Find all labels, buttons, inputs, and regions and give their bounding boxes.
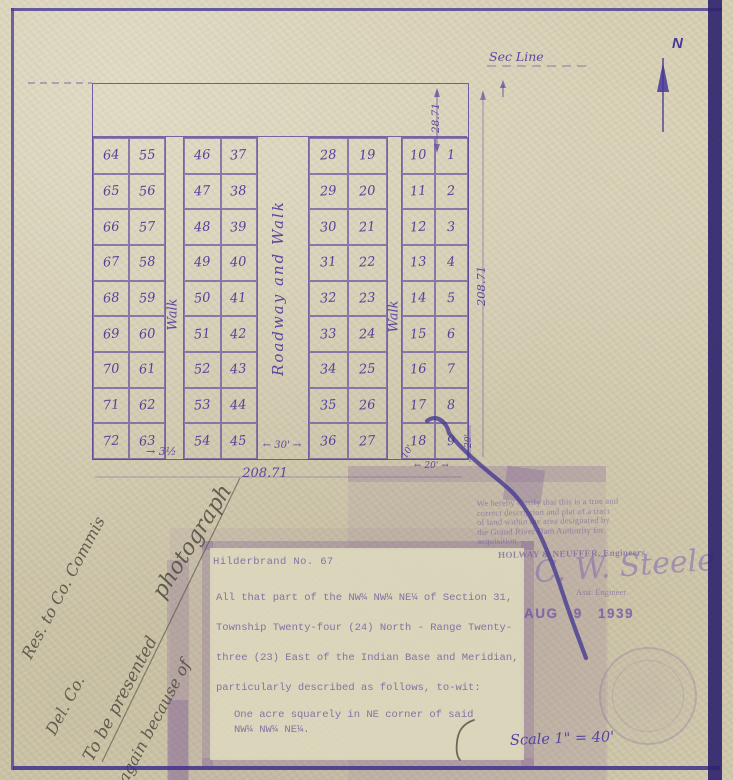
lot-number: 48 [193,219,211,235]
lot-number: 46 [193,148,211,164]
lot-cell: 57 [129,209,165,245]
lot-cell: 55 [129,138,165,174]
lot-number: 65 [102,183,120,199]
sec-line-arrowhead [500,80,506,88]
description-line: three (23) East of the Indian Base and M… [216,652,518,682]
lot-cell: 58 [129,245,165,281]
lot-cell: 29 [309,174,348,210]
lot-cell: 46 [184,138,221,174]
lot-number: 4 [447,255,456,271]
overlay-top-stain [348,466,606,482]
lot-cell: 5 [435,281,468,317]
lot-number: 35 [320,397,338,413]
north-arrow-head [657,62,669,92]
lot-cell: 7 [435,352,468,388]
description-line: All that part of the NW¼ NW¼ NE¼ of Sect… [216,592,518,622]
dim-side-height: 208.71 [474,259,488,313]
frame-left-line [11,8,14,770]
lot-cell: 4 [435,245,468,281]
dim-walk-left: → 3½ [146,445,176,458]
description-body: All that part of the NW¼ NW¼ NE¼ of Sect… [216,592,518,712]
description-heading: Hilderbrand No. 67 [213,556,334,568]
lot-cell: 23 [348,281,387,317]
lot-number: 38 [230,183,248,199]
lot-cell: 65 [93,174,129,210]
lot-number: 72 [102,433,120,449]
lot-number: 2 [447,184,456,200]
lot-cell: 59 [129,281,165,317]
lot-number: 41 [230,290,248,306]
lot-number: 68 [102,290,120,306]
lot-cell: 71 [93,388,129,424]
description-line: One acre squarely in NE corner of said [234,708,473,723]
lot-number: 26 [359,397,377,413]
lot-cell: 34 [309,352,348,388]
lot-number: 15 [410,326,428,342]
lot-cell: 27 [348,423,387,459]
lot-cell: 37 [221,138,258,174]
lot-cell: 1 [435,138,468,174]
lot-cell: 72 [93,423,129,459]
lot-cell: 14 [402,281,435,317]
lot-cell: 43 [221,352,258,388]
lot-cell: 24 [348,316,387,352]
lot-cell: 28 [309,138,348,174]
lot-block-b: 464748495051525354373839404142434445 [183,137,258,460]
lot-number: 59 [138,290,156,306]
lot-number: 7 [447,362,456,378]
lot-cell: 38 [221,174,258,210]
lot-number: 39 [230,219,248,235]
lot-number: 52 [193,362,211,378]
lot-cell: 2 [435,174,468,210]
lot-cell: 48 [184,209,221,245]
lot-cell: 39 [221,209,258,245]
lot-number: 37 [230,148,248,164]
lot-number: 61 [138,362,156,378]
lot-cell: 10 [402,138,435,174]
lot-cell: 35 [309,388,348,424]
lot-number: 6 [447,326,456,342]
lot-number: 12 [410,219,428,235]
lot-number: 24 [359,326,377,342]
lot-cell: 47 [184,174,221,210]
dim-lot-width: ← 20' → [414,461,449,471]
dim-roadway-width: ← 30' → [256,440,308,451]
lot-number: 56 [138,183,156,199]
lot-cell: 50 [184,281,221,317]
lot-number: 1 [447,148,456,164]
lot-number: 42 [230,326,248,342]
lot-number: 36 [320,433,338,449]
lot-number: 16 [410,362,428,378]
lot-number: 14 [410,290,428,306]
lot-cell: 51 [184,316,221,352]
dim-arrow [480,90,486,100]
lot-cell: 17 [402,388,435,424]
lot-cell: 31 [309,245,348,281]
lot-number: 19 [359,148,377,164]
lot-number: 67 [102,255,120,271]
lot-number: 20 [359,183,377,199]
lot-number: 45 [230,433,248,449]
lot-number: 30 [320,219,338,235]
lot-cell: 56 [129,174,165,210]
pencil-note-line: photograph [147,480,237,603]
lot-number: 21 [359,219,377,235]
lot-cell: 13 [402,245,435,281]
lot-cell: 61 [129,352,165,388]
lot-block-a: 646566676869707172555657585960616263 [92,137,166,460]
lot-cell: 52 [184,352,221,388]
lot-cell: 60 [129,316,165,352]
lot-number: 43 [230,362,248,378]
lot-number: 22 [359,255,377,271]
lot-number: 28 [320,148,338,164]
north-label: N [672,35,683,52]
description-line: NW¼ NW¼ NE¼. [234,723,473,738]
lot-number: 10 [410,148,428,164]
lot-number: 50 [193,290,211,306]
sec-line-label: Sec Line [489,49,544,64]
lot-cell: 49 [184,245,221,281]
lot-cell: 21 [348,209,387,245]
lot-cell: 30 [309,209,348,245]
lot-number: 31 [320,255,338,271]
lot-cell: 8 [435,388,468,424]
lot-cell: 6 [435,316,468,352]
lot-number: 55 [138,148,156,164]
lot-number: 11 [410,183,428,199]
lot-cell: 40 [221,245,258,281]
lot-cell: 11 [402,174,435,210]
lot-number: 62 [138,397,156,413]
lot-number: 5 [447,291,456,307]
description-indented: One acre squarely in NE corner of saidNW… [234,708,473,737]
lot-number: 33 [320,326,338,342]
roadway-label: Roadway and Walk [269,190,287,386]
lot-number: 69 [102,326,120,342]
lot-number: 58 [138,255,156,271]
lot-number: 17 [410,397,428,413]
lot-cell: 16 [402,352,435,388]
lot-cell: 41 [221,281,258,317]
lot-block-c: 282930313233343536192021222324252627 [308,137,388,460]
lot-cell: 67 [93,245,129,281]
lot-block-d: 101112131415161718123456789 [401,137,469,460]
description-line: Township Twenty-four (24) North - Range … [216,622,518,652]
lot-number: 47 [193,183,211,199]
lot-number: 34 [320,362,338,378]
lot-cell: 62 [129,388,165,424]
pencil-note-line: Del. Co. [42,672,89,738]
walk-left-label: Walk [166,293,181,337]
dim-lot-height: 20' [464,427,474,455]
lot-number: 54 [193,433,211,449]
lot-cell: 44 [221,388,258,424]
lot-number: 53 [193,397,211,413]
lot-number: 27 [359,433,377,449]
lot-number: 9 [447,433,456,449]
lot-cell: 54 [184,423,221,459]
lot-cell: 42 [221,316,258,352]
lot-cell: 12 [402,209,435,245]
frame-right-band [708,0,722,780]
lot-cell: 68 [93,281,129,317]
lot-number: 8 [447,398,456,414]
lot-cell: 66 [93,209,129,245]
walk-right-label: Walk [387,295,402,339]
lot-cell: 19 [348,138,387,174]
lot-cell: 25 [348,352,387,388]
lot-number: 51 [193,326,211,342]
lot-number: 3 [447,219,456,235]
lot-number: 40 [230,255,248,271]
lot-number: 70 [102,362,120,378]
scanned-plat-document: 646566676869707172555657585960616263 464… [0,0,733,780]
dim-strip-height: 28.71 [430,95,442,141]
lot-number: 71 [102,397,120,413]
dim-bottom-width: 208.71 [230,466,300,481]
lot-cell: 33 [309,316,348,352]
lot-cell: 69 [93,316,129,352]
lot-number: 60 [138,326,156,342]
lot-cell: 36 [309,423,348,459]
lot-cell: 32 [309,281,348,317]
lot-number: 23 [359,290,377,306]
pencil-note-line: Res. to Co. Commis [18,513,109,662]
signature-title: Asst. Engineer [576,587,626,597]
frame-top-line [11,8,722,11]
lot-cell: 20 [348,174,387,210]
lot-cell: 45 [221,423,258,459]
lot-number: 57 [138,219,156,235]
date-stamp: AUG 9 1939 [524,606,634,621]
lot-number: 66 [102,219,120,235]
lot-number: 44 [230,397,248,413]
card-edge-left [202,541,213,766]
lot-number: 49 [193,255,211,271]
lot-number: 64 [102,148,120,164]
lot-cell: 64 [93,138,129,174]
scale-note: Scale 1" = 40' [510,729,615,749]
lot-cell: 26 [348,388,387,424]
lot-number: 25 [359,362,377,378]
lot-cell: 3 [435,209,468,245]
lot-number: 13 [410,255,428,271]
lot-number: 32 [320,290,338,306]
lot-cell: 53 [184,388,221,424]
card-edge-bottom [202,758,534,766]
lot-cell: 15 [402,316,435,352]
certification-stamp: We hereby certify that this is a true an… [477,495,708,547]
lot-number: 29 [320,183,338,199]
lot-cell: 70 [93,352,129,388]
frame-bottom-line [13,766,720,770]
lot-cell: 22 [348,245,387,281]
